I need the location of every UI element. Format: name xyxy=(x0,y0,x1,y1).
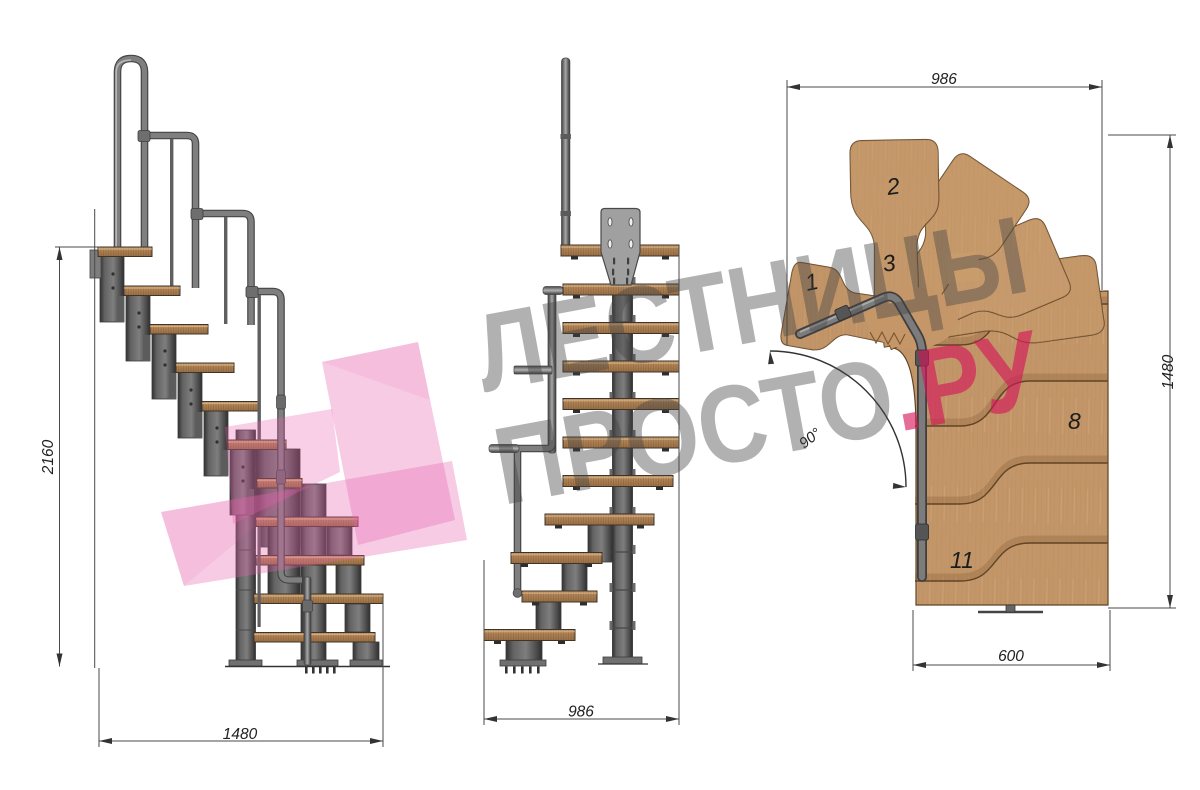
svg-text:2160: 2160 xyxy=(40,439,57,475)
svg-text:1480: 1480 xyxy=(223,726,258,743)
svg-text:986: 986 xyxy=(568,704,594,721)
svg-text:986: 986 xyxy=(931,71,957,88)
svg-text:600: 600 xyxy=(998,648,1024,665)
svg-text:8: 8 xyxy=(1068,408,1081,434)
svg-text:1480: 1480 xyxy=(1160,354,1177,389)
svg-text:11: 11 xyxy=(950,547,974,573)
